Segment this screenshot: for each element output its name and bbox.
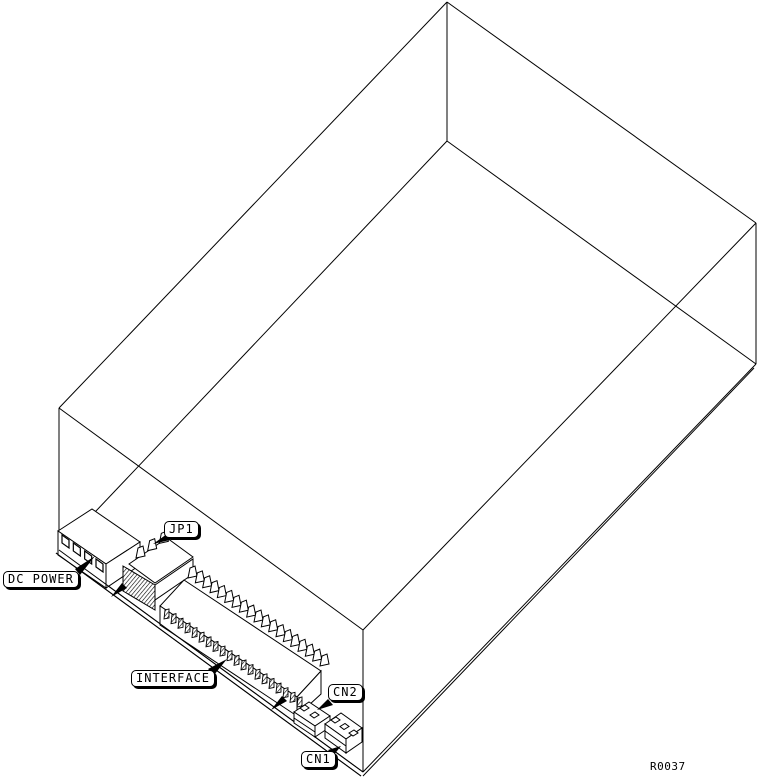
chassis-edge-bottom-back-left	[59, 141, 447, 550]
interface-front-pin	[297, 697, 302, 707]
jp1-pin	[148, 539, 157, 551]
interface-front-pin	[276, 683, 281, 693]
interface-front-pin	[269, 678, 274, 688]
interface-front-pin	[171, 614, 176, 624]
interface-front-pin	[185, 623, 190, 633]
drive-chassis-wireframe	[56, 2, 756, 776]
interface-front-pin	[192, 628, 197, 638]
chassis-edge-top-front-right	[363, 223, 756, 630]
callout-jp1: JP1	[164, 521, 199, 538]
callout-dc-power-text: DC POWER	[8, 572, 74, 586]
interface-front-pin	[283, 688, 288, 698]
callout-cn1: CN1	[301, 751, 336, 768]
chassis-lip-front-right	[363, 368, 754, 776]
interface-front-pin	[248, 665, 253, 675]
cn1-connector	[325, 713, 362, 753]
callout-interface: INTERFACE	[131, 670, 215, 687]
interface-front-pin	[164, 609, 169, 619]
drawing-number: R0037	[650, 760, 686, 773]
callout-jp1-text: JP1	[169, 522, 194, 536]
interface-front-pin	[227, 651, 232, 661]
interface-front-pin	[220, 646, 225, 656]
interface-front-pin	[206, 637, 211, 647]
interface-front-pin	[262, 674, 267, 684]
chassis-edge-bottom-front-right	[363, 364, 756, 772]
callout-dc-power: DC POWER	[3, 571, 79, 588]
chassis-edge-top-left	[59, 2, 447, 408]
chassis-edge-top-right	[447, 2, 756, 223]
isometric-drive-diagram	[0, 0, 758, 782]
interface-front-pin	[199, 632, 204, 642]
interface-front-pin	[290, 692, 295, 702]
chassis-edge-bottom-back-right	[447, 141, 756, 364]
callout-cn2: CN2	[328, 684, 363, 701]
interface-front-pin	[234, 655, 239, 665]
callout-cn2-text: CN2	[333, 685, 358, 699]
interface-front-pin	[213, 641, 218, 651]
interface-front-pin	[255, 669, 260, 679]
callout-interface-text: INTERFACE	[136, 671, 210, 685]
interface-front-pin	[241, 660, 246, 670]
figure-canvas: DC POWER JP1 INTERFACE CN2 CN1 R0037	[0, 0, 758, 782]
interface-front-pin	[178, 618, 183, 628]
callout-cn1-text: CN1	[306, 752, 331, 766]
